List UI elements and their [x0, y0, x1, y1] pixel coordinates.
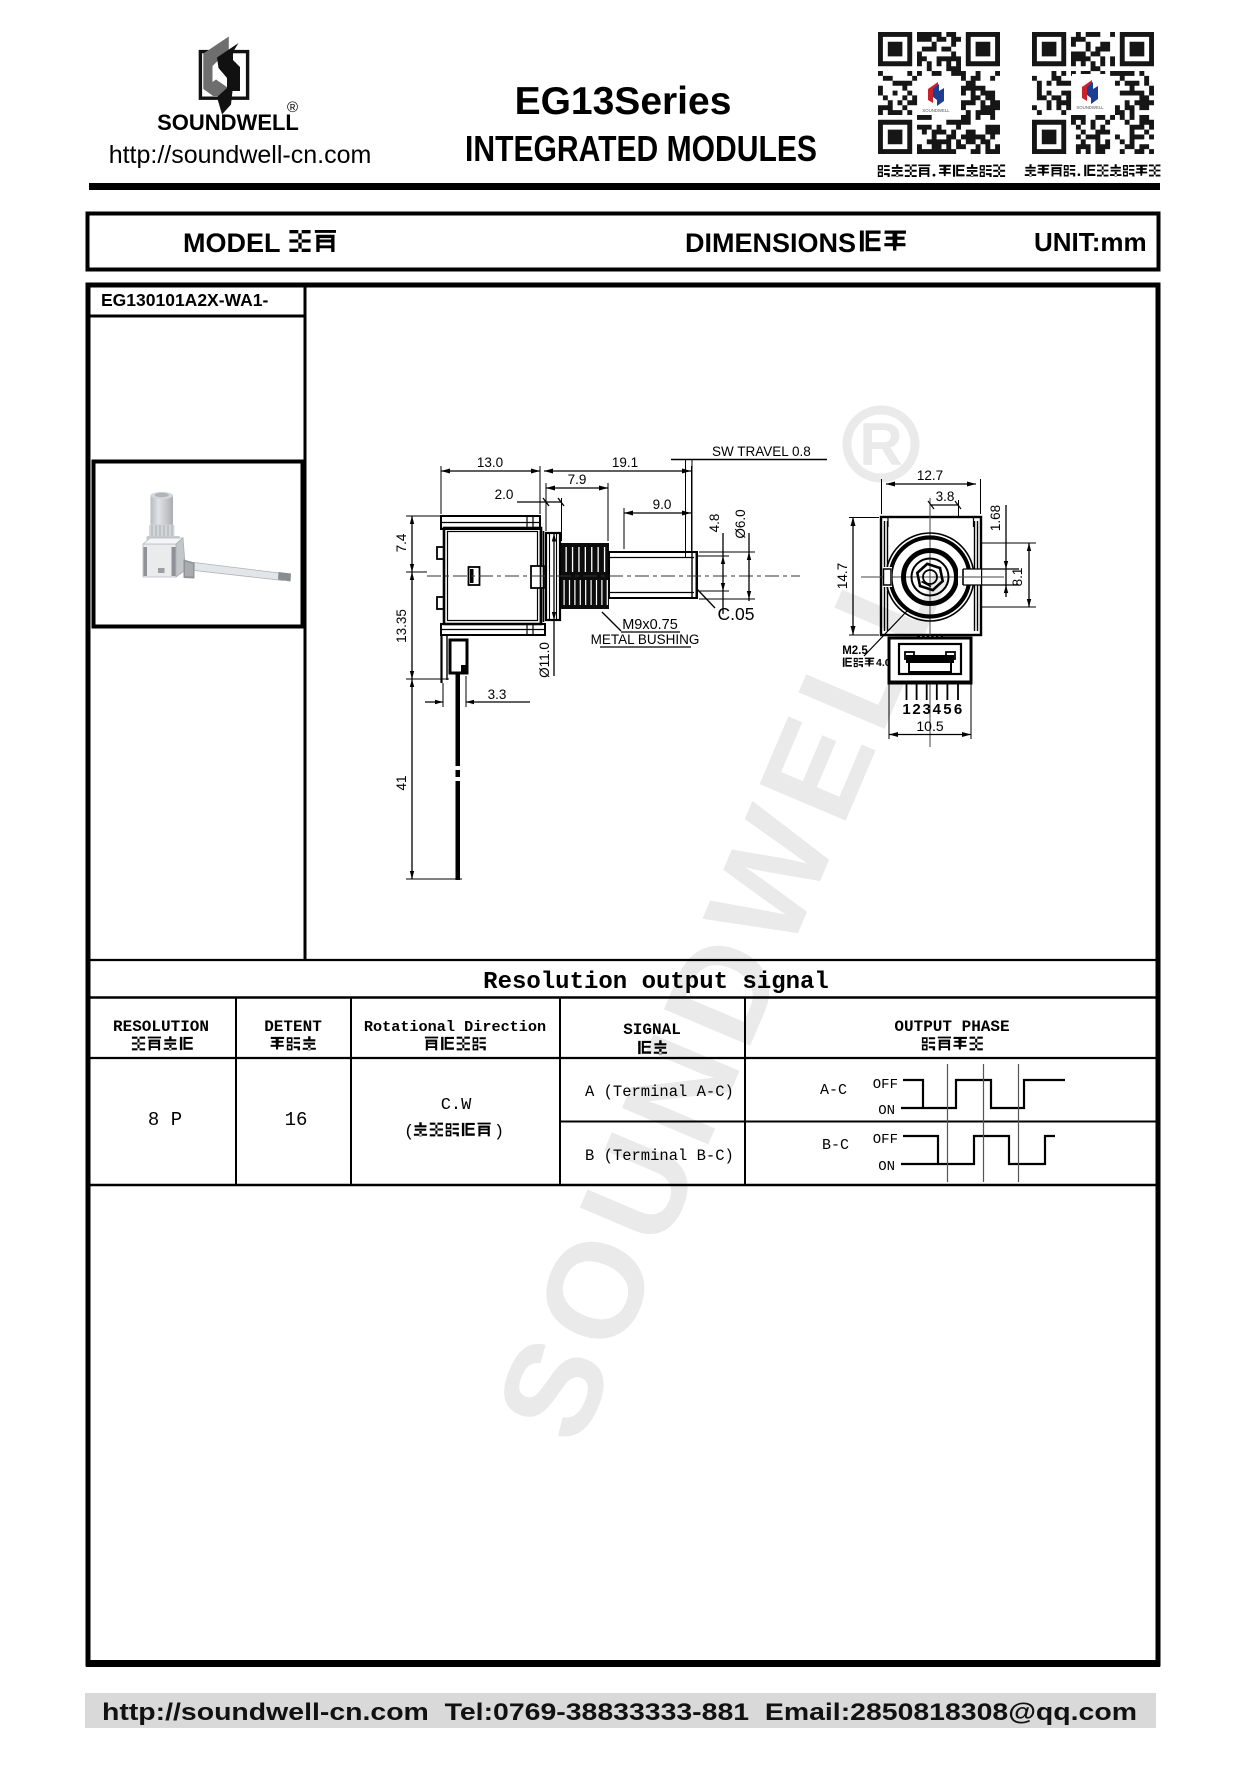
svg-text:MODEL: MODEL [183, 228, 281, 258]
svg-text:1.68: 1.68 [988, 505, 1003, 531]
svg-text:(: ( [404, 1123, 414, 1142]
svg-text:OFF: OFF [873, 1132, 898, 1148]
svg-text:METAL BUSHING: METAL BUSHING [591, 632, 700, 647]
svg-text:6: 6 [954, 701, 962, 718]
svg-text:ON: ON [878, 1159, 895, 1175]
svg-text:Resolution output signal: Resolution output signal [483, 969, 829, 996]
svg-text:EG130101A2X-WA1-: EG130101A2X-WA1- [101, 290, 268, 310]
svg-text:SOUNDWELL: SOUNDWELL [1076, 105, 1104, 110]
svg-text:1: 1 [902, 701, 910, 718]
svg-text:OUTPUT PHASE: OUTPUT PHASE [894, 1018, 1009, 1036]
svg-text:3.3: 3.3 [488, 687, 507, 702]
svg-text:SIGNAL: SIGNAL [623, 1021, 681, 1039]
svg-text:14.7: 14.7 [835, 563, 850, 589]
svg-text:2.0: 2.0 [495, 487, 514, 502]
svg-text:19.1: 19.1 [612, 455, 638, 470]
svg-text:B-C: B-C [822, 1137, 849, 1154]
svg-text:®: ® [287, 99, 298, 116]
svg-text:DIMENSIONS: DIMENSIONS [685, 228, 856, 258]
svg-text:C.W: C.W [441, 1096, 472, 1115]
svg-text:OFF: OFF [873, 1077, 898, 1093]
svg-text:3: 3 [923, 701, 931, 718]
svg-text:7.4: 7.4 [394, 533, 409, 552]
svg-text:4: 4 [933, 701, 942, 718]
svg-text:4.0: 4.0 [876, 657, 891, 669]
svg-text:UNIT:mm: UNIT:mm [1034, 227, 1147, 257]
svg-text:9.0: 9.0 [653, 497, 672, 512]
svg-text:A (Terminal A-C): A (Terminal A-C) [585, 1083, 734, 1101]
svg-text:8.1: 8.1 [1010, 568, 1025, 587]
svg-text:A-C: A-C [820, 1082, 847, 1099]
svg-text:5: 5 [943, 701, 951, 718]
svg-text:12.7: 12.7 [917, 468, 943, 483]
svg-text:10.5: 10.5 [916, 718, 943, 734]
svg-text:3.8: 3.8 [936, 489, 955, 504]
svg-text:7.9: 7.9 [568, 472, 587, 487]
svg-text:INTEGRATED MODULES: INTEGRATED MODULES [465, 128, 817, 169]
svg-text:Ø6.0: Ø6.0 [733, 509, 748, 538]
svg-text:41: 41 [394, 775, 409, 790]
svg-text:13.35: 13.35 [394, 609, 409, 643]
svg-text:Rotational Direction: Rotational Direction [364, 1018, 546, 1036]
svg-text:Ø11.0: Ø11.0 [537, 642, 552, 678]
svg-text:SOUNDWELL: SOUNDWELL [922, 108, 950, 113]
svg-text:M9x0.75: M9x0.75 [622, 617, 678, 633]
svg-text:EG13Series: EG13Series [515, 80, 732, 123]
svg-text:ON: ON [878, 1103, 895, 1119]
svg-text:8 P: 8 P [148, 1109, 182, 1131]
svg-text:SW TRAVEL 0.8: SW TRAVEL 0.8 [712, 444, 811, 459]
svg-text:B (Terminal B-C): B (Terminal B-C) [585, 1147, 734, 1165]
svg-text:http://soundwell-cn.com Tel:0: http://soundwell-cn.com Tel:0769-3883333… [102, 1699, 1137, 1726]
svg-text:): ) [494, 1123, 504, 1142]
svg-text:2: 2 [912, 701, 920, 718]
svg-text:DETENT: DETENT [264, 1018, 322, 1036]
svg-text:RESOLUTION: RESOLUTION [113, 1018, 209, 1036]
svg-text:13.0: 13.0 [477, 455, 503, 470]
svg-text:SOUNDWELL: SOUNDWELL [157, 110, 299, 135]
svg-text:http://soundwell-cn.com: http://soundwell-cn.com [109, 141, 372, 169]
svg-text:R: R [859, 411, 902, 478]
svg-text:4.8: 4.8 [707, 514, 722, 533]
svg-text:C.05: C.05 [718, 604, 755, 624]
svg-text:16: 16 [285, 1109, 308, 1131]
